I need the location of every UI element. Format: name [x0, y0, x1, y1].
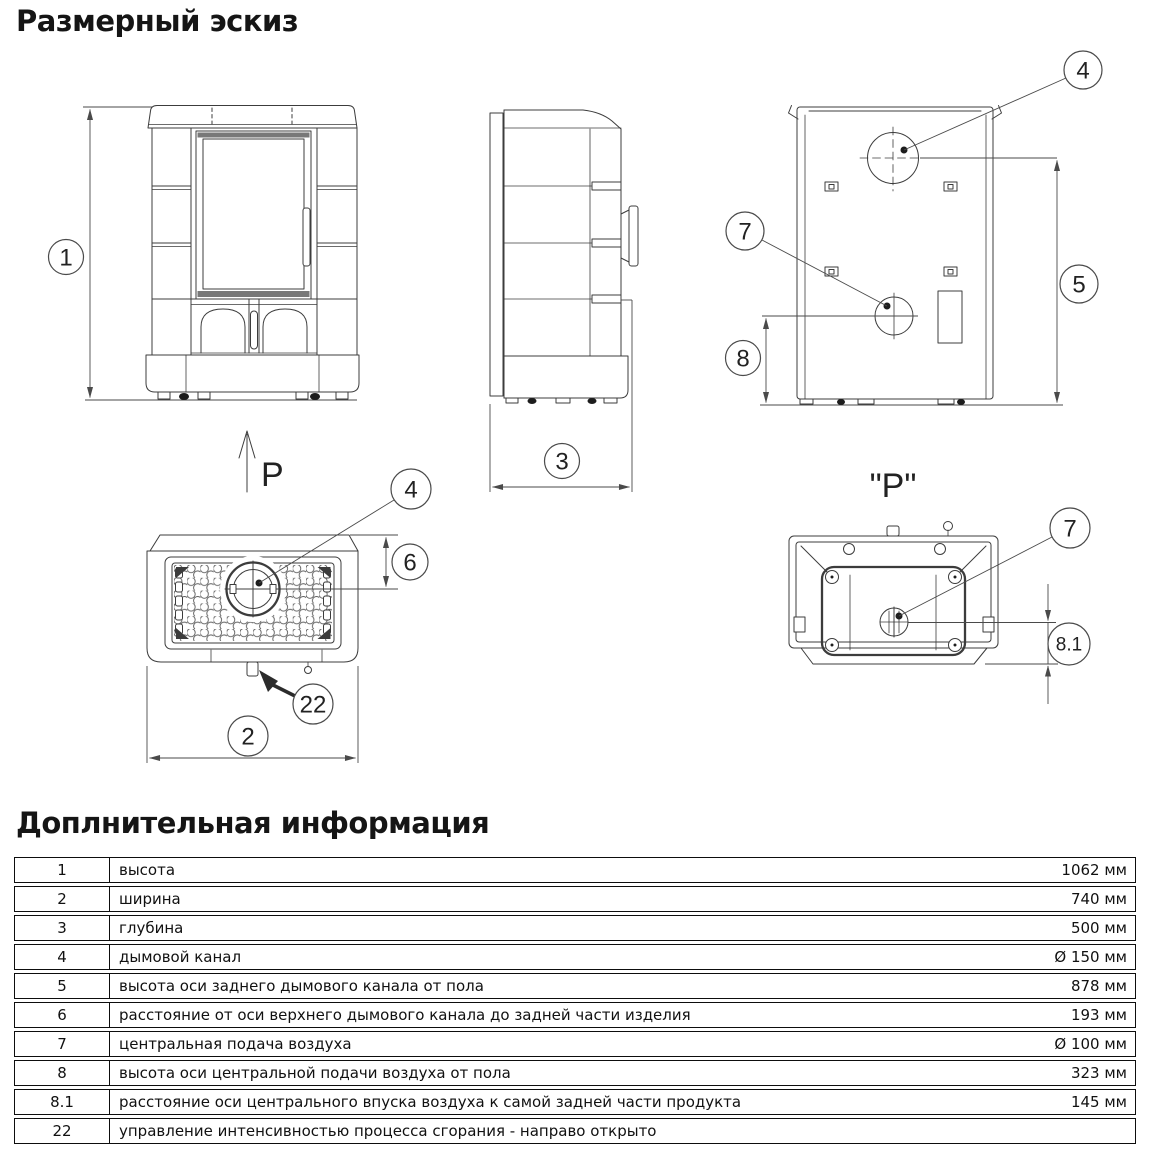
row-value: Ø 150 мм	[1054, 945, 1135, 969]
row-number: 1	[15, 858, 110, 882]
table-row: 4 дымовой канал Ø 150 мм	[14, 944, 1136, 970]
row-label: дымовой канал	[110, 945, 1054, 969]
row-label: центральная подача воздуха	[110, 1032, 1054, 1056]
row-value: 193 мм	[1071, 1003, 1135, 1027]
info-section-title: Доплнительная информация	[16, 806, 489, 840]
row-value: 500 мм	[1071, 916, 1135, 940]
arched-panel-right	[263, 309, 307, 353]
arched-panel-left	[201, 309, 245, 353]
top-smoke-channel	[220, 556, 286, 622]
balloon-2-width: 2	[228, 716, 268, 756]
row-label: высота оси заднего дымового канала от по…	[110, 974, 1071, 998]
row-value: 878 мм	[1071, 974, 1135, 998]
row-value: 323 мм	[1071, 1061, 1135, 1085]
balloon-7-bottom: 7	[1050, 508, 1090, 548]
row-value	[1127, 1119, 1135, 1143]
side-view: 3	[490, 110, 638, 492]
row-label: расстояние от оси верхнего дымового кана…	[110, 1003, 1071, 1027]
bottom-air-inlet	[880, 607, 908, 637]
row-number: 5	[15, 974, 110, 998]
row-label: ширина	[110, 887, 1071, 911]
row-value: Ø 100 мм	[1054, 1032, 1135, 1056]
row-number: 6	[15, 1003, 110, 1027]
balloon-22-label: 22	[300, 692, 327, 719]
table-row: 22 управление интенсивностью процесса сг…	[14, 1118, 1136, 1144]
balloon-4-smoke-channel: 4	[1064, 51, 1102, 89]
balloon-22-control: 22	[293, 684, 333, 724]
balloon-4-top: 4	[391, 469, 431, 509]
balloon-8-air-height: 8	[726, 341, 761, 376]
side-door-handle	[621, 206, 638, 266]
combustion-control-knob	[247, 662, 312, 676]
balloon-2-label: 2	[241, 724, 254, 751]
stove-glass-door	[196, 131, 311, 299]
table-row: 3 глубина 500 мм	[14, 915, 1136, 941]
balloon-6-label: 6	[403, 550, 416, 577]
balloon-1-label: 1	[59, 245, 72, 272]
dimensional-sketch-page: Размерный эскиз 1	[0, 0, 1151, 1152]
view-arrow-p-label: P	[261, 456, 284, 494]
top-view: P	[147, 431, 431, 763]
table-row: 8 высота оси центральной подачи воздуха …	[14, 1060, 1136, 1086]
balloon-4-top-label: 4	[404, 477, 417, 504]
balloon-4-label: 4	[1076, 58, 1089, 85]
balloon-6-smoke-offset: 6	[392, 544, 428, 580]
balloon-7-bottom-label: 7	[1063, 516, 1076, 543]
view-direction-arrow-p: P	[239, 431, 284, 494]
table-row: 8.1 расстояние оси центрального впуска в…	[14, 1089, 1136, 1115]
front-view: 1	[49, 106, 360, 401]
balloon-5-label: 5	[1072, 272, 1085, 299]
row-label: высота	[110, 858, 1061, 882]
row-number: 3	[15, 916, 110, 940]
row-number: 7	[15, 1032, 110, 1056]
table-row: 2 ширина 740 мм	[14, 886, 1136, 912]
row-number: 2	[15, 887, 110, 911]
leader-22-arrow	[259, 670, 278, 692]
door-handle	[303, 208, 310, 266]
table-row: 6 расстояние от оси верхнего дымового ка…	[14, 1002, 1136, 1028]
bottom-view-p: "P"	[789, 467, 1090, 704]
row-label: высота оси центральной подачи воздуха от…	[110, 1061, 1071, 1085]
row-number: 4	[15, 945, 110, 969]
p-view-title: "P"	[870, 467, 917, 505]
row-value: 1062 мм	[1061, 858, 1135, 882]
row-value: 145 мм	[1071, 1090, 1135, 1114]
balloon-8-1-air-offset: 8.1	[1048, 623, 1090, 665]
balloon-3-depth: 3	[545, 444, 580, 479]
row-number: 8	[15, 1061, 110, 1085]
balloon-8-1-label: 8.1	[1056, 635, 1082, 656]
row-value: 740 мм	[1071, 887, 1135, 911]
table-row: 1 высота 1062 мм	[14, 857, 1136, 883]
back-view: 4 7 8 5	[726, 51, 1103, 405]
row-label: управление интенсивностью процесса сгора…	[110, 1119, 1127, 1143]
balloon-3-label: 3	[555, 449, 568, 476]
row-number: 22	[15, 1119, 110, 1143]
row-label: глубина	[110, 916, 1071, 940]
table-row: 5 высота оси заднего дымового канала от …	[14, 973, 1136, 999]
balloon-8-label: 8	[736, 346, 749, 373]
dimensional-sketch-drawing: 1	[0, 0, 1151, 800]
table-row: 7 центральная подача воздуха Ø 100 мм	[14, 1031, 1136, 1057]
row-number: 8.1	[15, 1090, 110, 1114]
balloon-7-air-inlet: 7	[726, 212, 764, 250]
row-label: расстояние оси центрального впуска возду…	[110, 1090, 1071, 1114]
balloon-7-label: 7	[738, 219, 751, 246]
info-table: 1 высота 1062 мм 2 ширина 740 мм 3 глуби…	[14, 857, 1136, 1147]
balloon-5-smoke-height: 5	[1060, 265, 1098, 303]
balloon-1-height: 1	[49, 240, 84, 275]
